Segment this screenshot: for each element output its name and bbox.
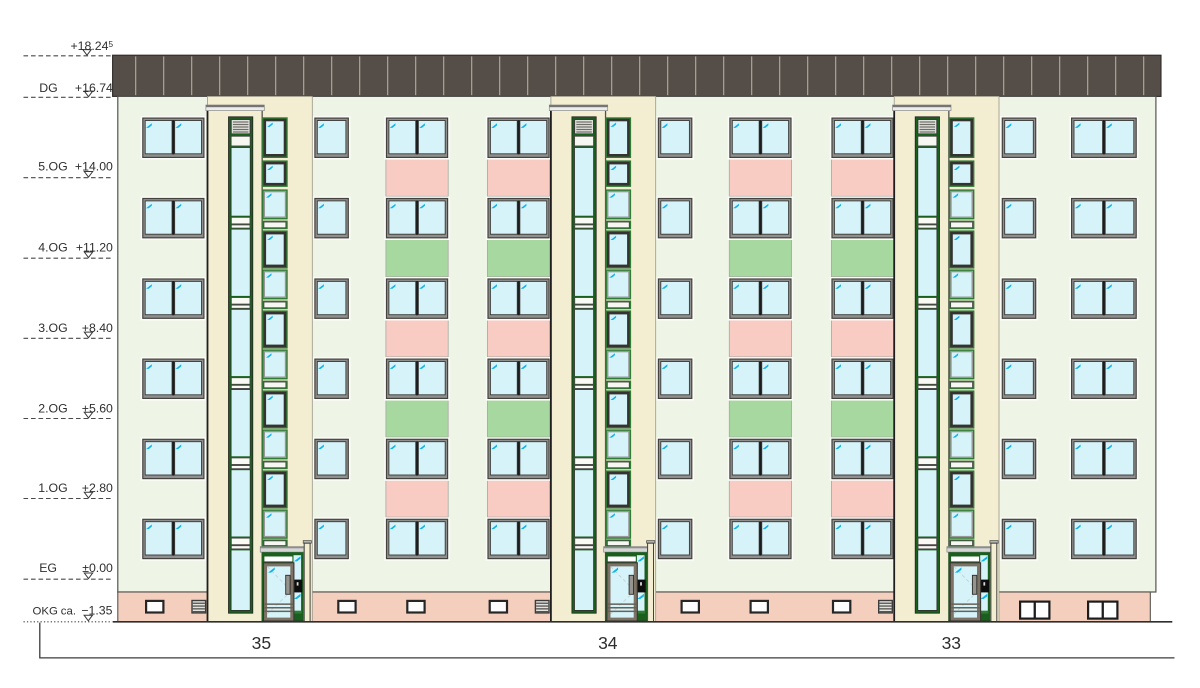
svg-text:+2.80: +2.80 xyxy=(82,481,113,495)
svg-text:33: 33 xyxy=(942,633,961,653)
svg-text:OKG: OKG xyxy=(33,605,58,617)
svg-text:+14.00: +14.00 xyxy=(75,160,113,174)
svg-text:35: 35 xyxy=(252,633,271,653)
svg-text:4.OG: 4.OG xyxy=(38,241,67,255)
svg-text:3.OG: 3.OG xyxy=(38,321,67,335)
svg-text:+18.245: +18.245 xyxy=(70,39,113,53)
svg-text:+16.74: +16.74 xyxy=(75,81,113,95)
svg-text:34: 34 xyxy=(598,633,618,653)
svg-text:+5.60: +5.60 xyxy=(82,401,113,415)
svg-text:−1.35: −1.35 xyxy=(81,603,112,617)
svg-text:1.OG: 1.OG xyxy=(38,481,67,495)
svg-text:EG: EG xyxy=(39,561,57,575)
svg-text:5.OG: 5.OG xyxy=(38,160,67,174)
svg-text:±0.00: ±0.00 xyxy=(82,561,113,575)
svg-text:ca.: ca. xyxy=(61,605,76,617)
svg-text:+11.20: +11.20 xyxy=(76,241,113,255)
svg-text:+8.40: +8.40 xyxy=(82,321,113,335)
svg-text:2.OG: 2.OG xyxy=(38,401,67,415)
svg-text:DG: DG xyxy=(39,81,57,95)
